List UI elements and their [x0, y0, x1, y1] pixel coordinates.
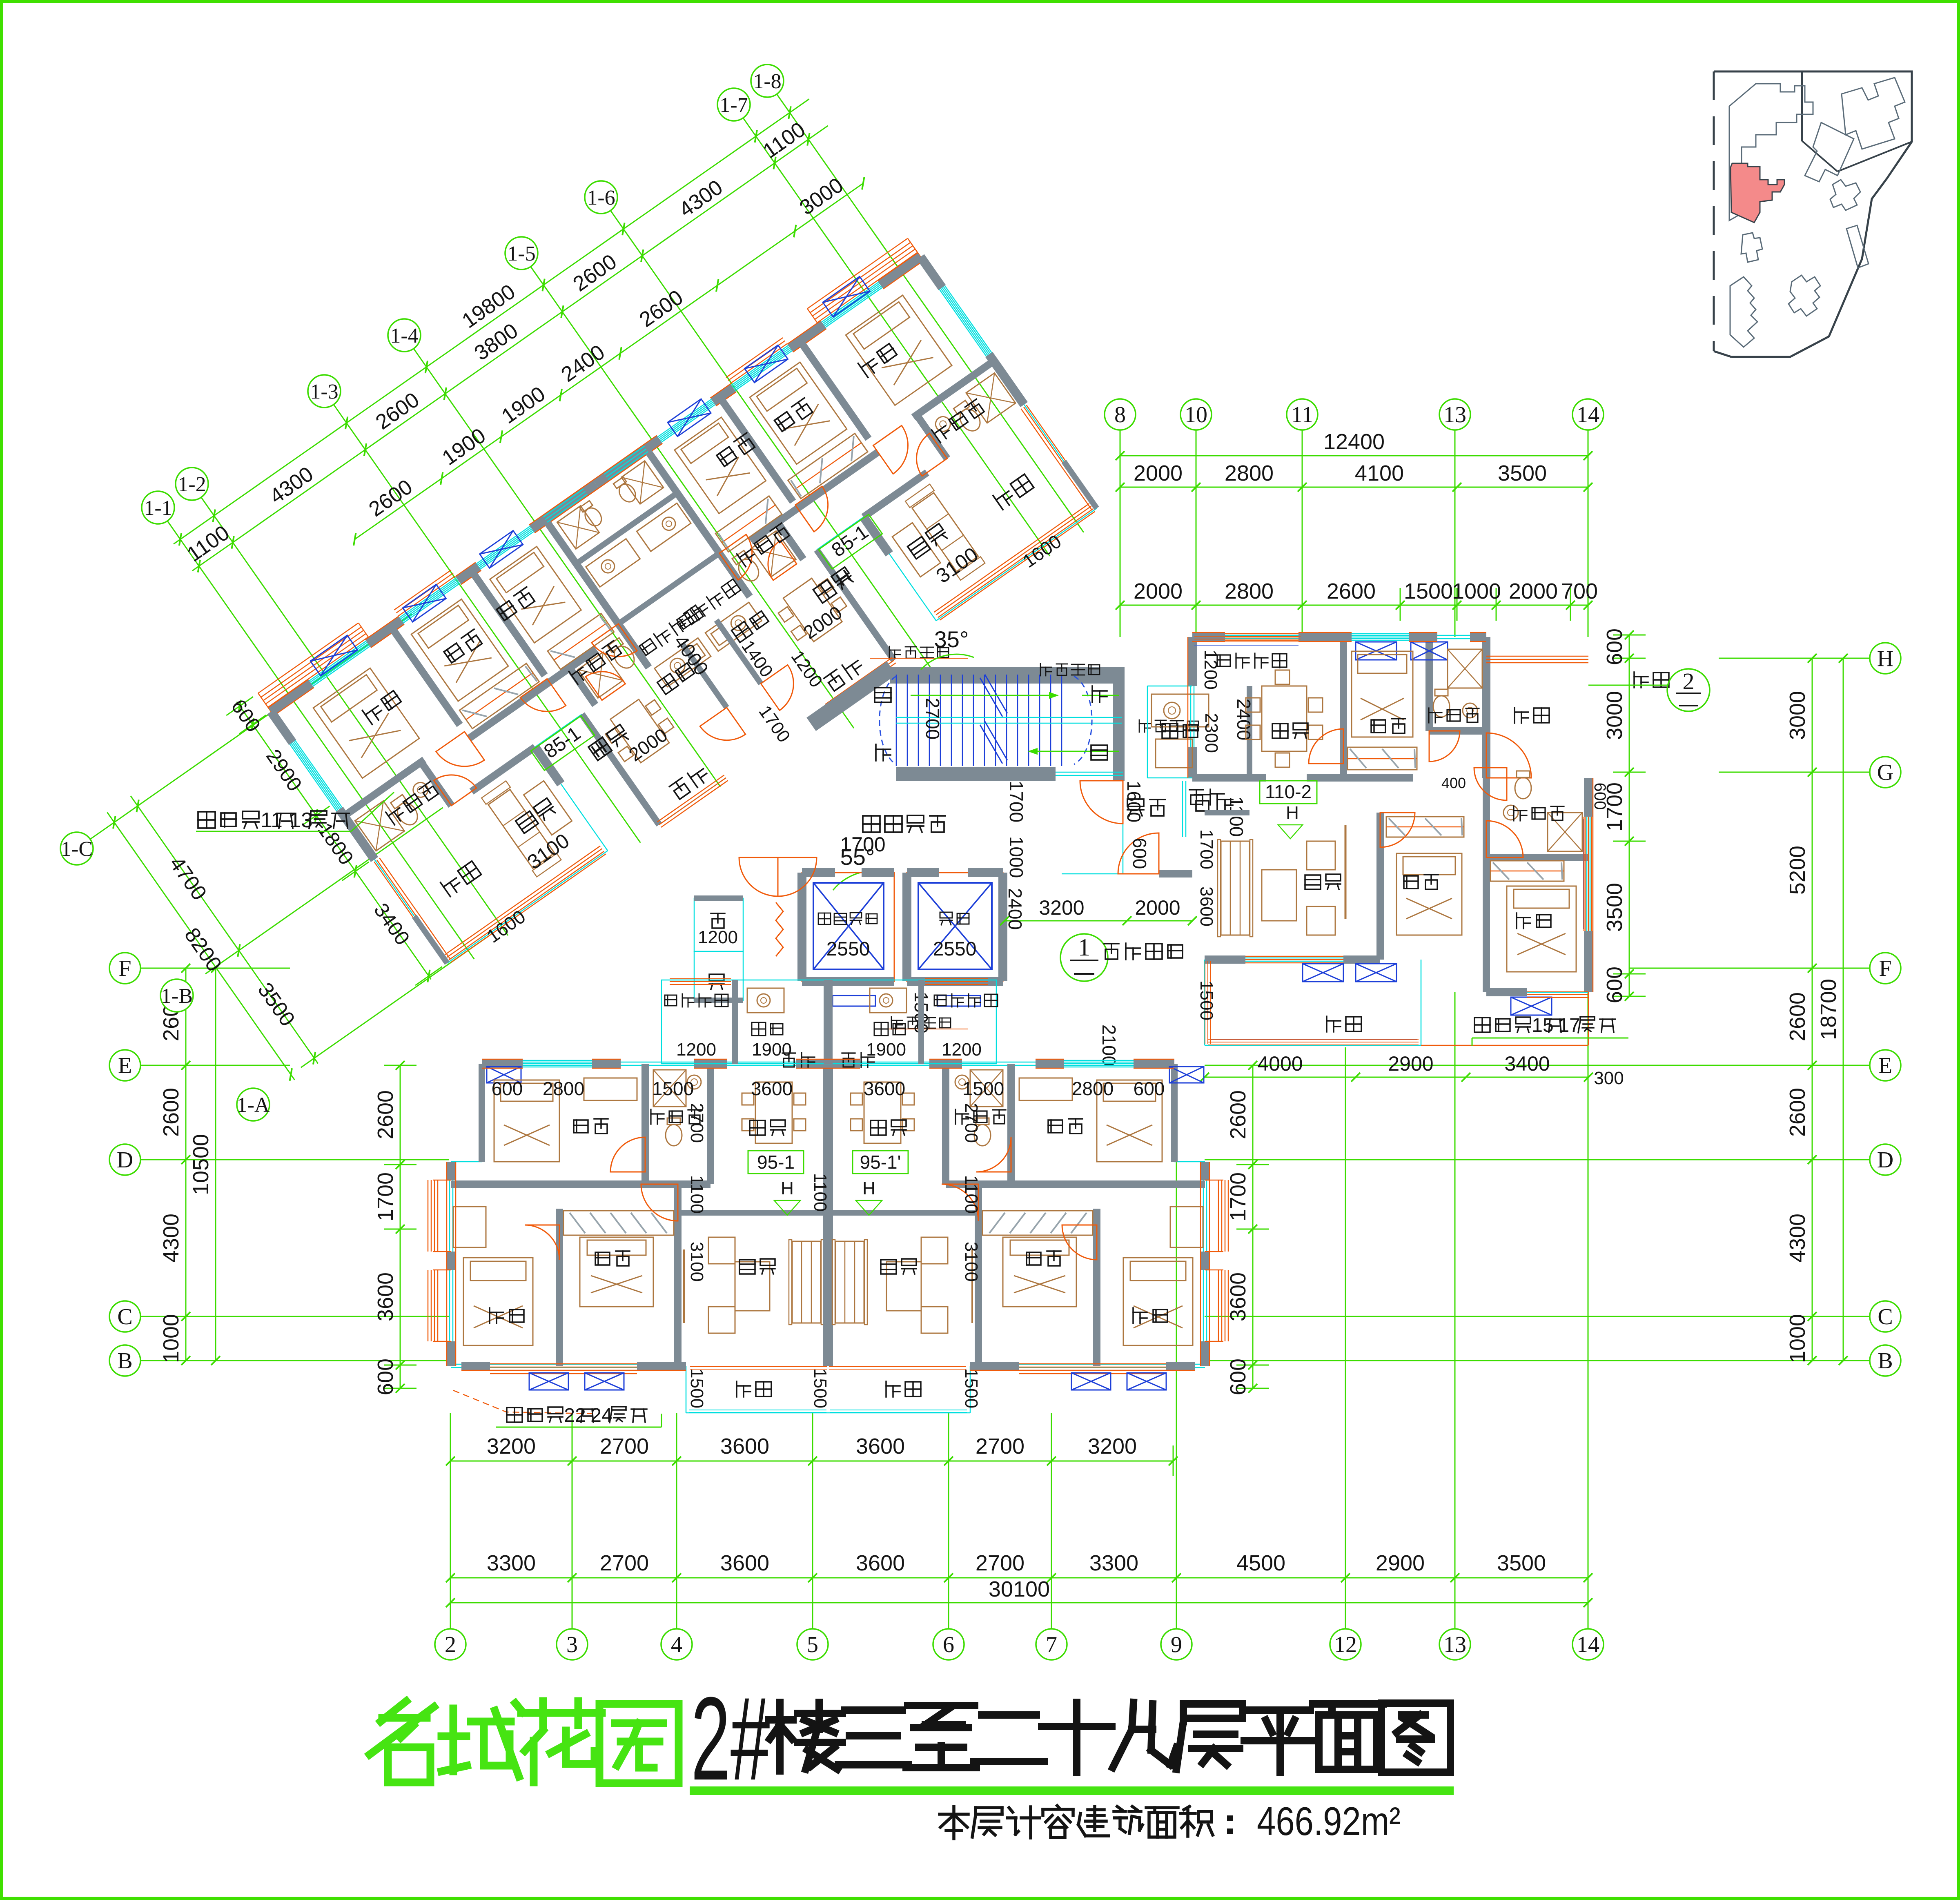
svg-text:600: 600 [373, 1359, 398, 1395]
svg-text:3000: 3000 [1785, 691, 1810, 740]
svg-text:2600: 2600 [1327, 579, 1376, 604]
svg-text:4: 4 [671, 1632, 682, 1657]
svg-text:1-1: 1-1 [144, 497, 172, 520]
svg-text:3200: 3200 [487, 1434, 536, 1459]
svg-text:3600: 3600 [864, 1078, 905, 1099]
svg-text:5: 5 [807, 1632, 818, 1657]
svg-text:2900: 2900 [1376, 1551, 1425, 1575]
svg-text:2600: 2600 [159, 1088, 183, 1137]
svg-text:2800: 2800 [1225, 579, 1274, 604]
svg-text:3600: 3600 [1226, 1272, 1250, 1321]
svg-text:466.92m²: 466.92m² [1257, 1800, 1401, 1844]
svg-text:1700: 1700 [373, 1172, 398, 1221]
svg-text:1200: 1200 [942, 1040, 982, 1060]
svg-text:8: 8 [1114, 402, 1126, 428]
svg-text:3200: 3200 [1039, 896, 1084, 919]
svg-text:600: 600 [1129, 838, 1150, 869]
svg-text:1-7: 1-7 [719, 94, 748, 117]
svg-text:H: H [781, 1178, 794, 1198]
svg-text:1-B: 1-B [161, 984, 193, 1008]
svg-text:3100: 3100 [961, 1242, 981, 1282]
svg-text:2800: 2800 [1072, 1078, 1114, 1099]
svg-text:3100: 3100 [687, 1242, 707, 1282]
svg-text:2700: 2700 [600, 1551, 649, 1575]
svg-text:2550: 2550 [933, 938, 977, 960]
svg-text:1-A: 1-A [237, 1094, 270, 1117]
svg-text:3500: 3500 [1498, 461, 1547, 486]
svg-text:9: 9 [1171, 1632, 1182, 1657]
svg-text:C: C [117, 1304, 132, 1330]
svg-text:1-5: 1-5 [507, 242, 535, 265]
svg-text:2#: 2# [691, 1673, 770, 1805]
svg-text:1: 1 [1078, 934, 1090, 961]
svg-text:10: 10 [1185, 402, 1207, 428]
svg-text:12: 12 [1334, 1632, 1357, 1657]
svg-text:11: 11 [1291, 402, 1313, 428]
svg-text:1700: 1700 [840, 833, 885, 856]
svg-text:3600: 3600 [720, 1551, 769, 1575]
svg-text:1100: 1100 [687, 1175, 707, 1214]
svg-text:95-1': 95-1' [860, 1151, 901, 1173]
svg-text:3000: 3000 [1602, 691, 1627, 740]
svg-text:4500: 4500 [1236, 1551, 1285, 1575]
svg-text:35°: 35° [934, 626, 969, 652]
svg-text:D: D [117, 1147, 133, 1173]
svg-text:2800: 2800 [543, 1078, 584, 1099]
svg-text:1100: 1100 [961, 1175, 981, 1214]
svg-text:H: H [862, 1178, 875, 1198]
svg-text:3300: 3300 [1089, 1551, 1138, 1575]
svg-text:1700: 1700 [1226, 1172, 1250, 1221]
svg-text:H: H [1286, 803, 1299, 823]
svg-text:1200: 1200 [698, 927, 738, 947]
svg-text:H: H [1877, 646, 1893, 671]
svg-text:1500: 1500 [962, 1078, 1004, 1099]
svg-text:2: 2 [445, 1632, 456, 1657]
svg-text:4100: 4100 [1355, 461, 1404, 486]
svg-text:2900: 2900 [1388, 1052, 1433, 1075]
svg-text:1100: 1100 [810, 1173, 830, 1212]
svg-text:7: 7 [1046, 1632, 1057, 1657]
svg-text:1-3: 1-3 [310, 380, 338, 403]
svg-text:2700: 2700 [961, 1103, 981, 1143]
svg-text:3500: 3500 [1497, 1551, 1546, 1575]
svg-text:1000: 1000 [1785, 1314, 1810, 1363]
svg-text:G: G [1877, 760, 1893, 785]
svg-text:1-8: 1-8 [753, 70, 781, 93]
svg-text:13: 13 [1443, 1632, 1466, 1657]
svg-text:1900: 1900 [752, 1040, 792, 1060]
svg-text:600: 600 [1591, 783, 1609, 810]
svg-text:3300: 3300 [487, 1551, 536, 1575]
svg-text:1-6: 1-6 [587, 186, 615, 209]
svg-text:5200: 5200 [1785, 846, 1810, 895]
svg-text:1200: 1200 [1200, 650, 1221, 690]
svg-text:110-2: 110-2 [1265, 781, 1312, 802]
svg-text:F: F [1879, 956, 1891, 981]
svg-text:1500: 1500 [687, 1368, 707, 1408]
svg-text:1500: 1500 [810, 1368, 830, 1408]
svg-text:2600: 2600 [1226, 1090, 1250, 1139]
svg-text:600: 600 [1226, 1359, 1250, 1395]
svg-text:1100: 1100 [1226, 797, 1247, 837]
svg-text:600: 600 [1602, 628, 1627, 665]
svg-text:B: B [117, 1348, 132, 1374]
svg-text:12400: 12400 [1323, 430, 1385, 454]
svg-text:95-1: 95-1 [757, 1151, 795, 1173]
svg-text:3600: 3600 [751, 1078, 793, 1099]
svg-text:1-4: 1-4 [390, 324, 418, 347]
svg-text:3600: 3600 [1196, 886, 1216, 927]
svg-text:600: 600 [1602, 967, 1627, 1003]
svg-text:2700: 2700 [976, 1434, 1025, 1459]
svg-text:3600: 3600 [856, 1434, 905, 1459]
svg-text:1700: 1700 [1196, 829, 1216, 869]
svg-text:2600: 2600 [1785, 992, 1810, 1041]
svg-text:2550: 2550 [826, 938, 870, 960]
svg-text:10500: 10500 [189, 1134, 213, 1195]
svg-text:2000: 2000 [1135, 896, 1180, 919]
svg-text:3600: 3600 [373, 1272, 398, 1321]
svg-text:1000: 1000 [1006, 836, 1027, 878]
svg-text:D: D [1877, 1147, 1893, 1173]
svg-text:1900: 1900 [866, 1040, 906, 1060]
svg-text:3: 3 [566, 1632, 578, 1657]
svg-text:3600: 3600 [856, 1551, 905, 1575]
svg-text:4300: 4300 [1785, 1214, 1810, 1263]
svg-text:600: 600 [492, 1078, 523, 1099]
svg-text:1500: 1500 [961, 1368, 981, 1408]
svg-text:4000: 4000 [1257, 1052, 1303, 1075]
svg-text:F: F [118, 956, 131, 981]
svg-text:2700: 2700 [922, 698, 943, 739]
svg-text:300: 300 [1594, 1068, 1624, 1088]
svg-text:30100: 30100 [989, 1577, 1050, 1601]
svg-text:2400: 2400 [1004, 888, 1026, 930]
svg-text:E: E [1878, 1053, 1892, 1078]
svg-text:C: C [1878, 1304, 1893, 1330]
svg-text:400: 400 [1441, 775, 1466, 791]
svg-text:2700: 2700 [976, 1551, 1025, 1575]
svg-text:2300: 2300 [1201, 713, 1221, 753]
svg-text:1500: 1500 [1404, 579, 1453, 604]
svg-text:3400: 3400 [1504, 1052, 1550, 1075]
svg-text:1-2: 1-2 [178, 473, 206, 496]
svg-text:2: 2 [1683, 668, 1695, 695]
svg-text:13: 13 [1443, 402, 1466, 428]
svg-text:2700: 2700 [687, 1103, 707, 1143]
svg-text:1000: 1000 [1452, 579, 1501, 604]
svg-text:2400: 2400 [1233, 699, 1254, 740]
svg-text:2800: 2800 [1225, 461, 1274, 486]
svg-text:3200: 3200 [1088, 1434, 1137, 1459]
svg-text:B: B [1878, 1348, 1893, 1374]
svg-text:4300: 4300 [159, 1214, 183, 1263]
svg-text:2000: 2000 [1509, 579, 1558, 604]
svg-text:2700: 2700 [600, 1434, 649, 1459]
svg-text:3600: 3600 [720, 1434, 769, 1459]
svg-text:1-C: 1-C [61, 837, 93, 861]
svg-text:1000: 1000 [159, 1314, 183, 1363]
svg-text:1600: 1600 [1123, 781, 1145, 822]
svg-text:14: 14 [1577, 1632, 1599, 1657]
svg-text:1500: 1500 [652, 1078, 694, 1099]
svg-text:1500: 1500 [1196, 980, 1216, 1020]
svg-text:700: 700 [1561, 579, 1598, 604]
svg-text:E: E [118, 1053, 132, 1078]
svg-text:1700: 1700 [1006, 781, 1027, 822]
svg-text:14: 14 [1577, 402, 1599, 428]
svg-text:2600: 2600 [373, 1090, 398, 1139]
svg-text:6: 6 [943, 1632, 954, 1657]
svg-text:3500: 3500 [1602, 883, 1627, 932]
svg-text:2000: 2000 [1134, 461, 1183, 486]
svg-text:18700: 18700 [1816, 979, 1841, 1040]
svg-text:1200: 1200 [676, 1040, 716, 1060]
svg-text:600: 600 [1134, 1078, 1165, 1099]
svg-text:17: 17 [1558, 1015, 1580, 1036]
svg-text:2000: 2000 [1134, 579, 1183, 604]
svg-text:2600: 2600 [1785, 1088, 1810, 1137]
